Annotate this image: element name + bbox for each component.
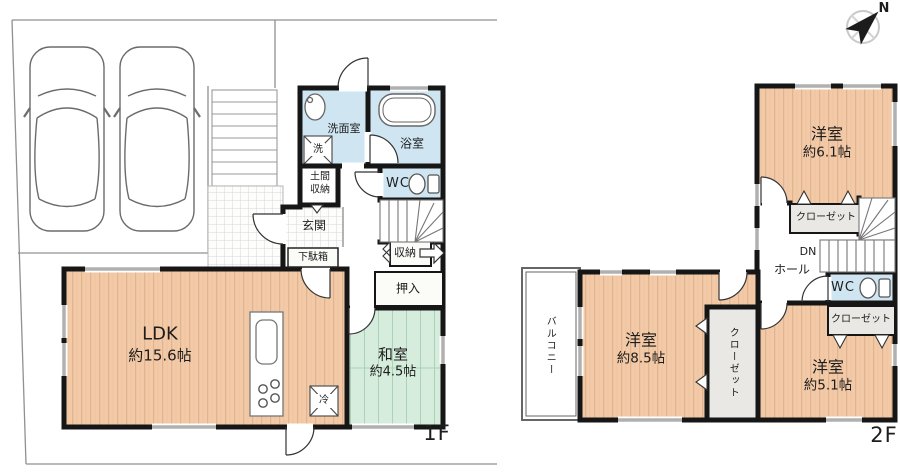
closet-85 <box>709 309 756 418</box>
stairs-1f-icon <box>380 200 443 242</box>
floorplan-canvas: N 洗面室 洗 浴室 WC 土間 収納 玄関 下駄箱 収納 押入 LDK 約15… <box>0 0 900 476</box>
washbasin-icon <box>305 94 325 120</box>
compass-icon <box>845 4 886 45</box>
washer-icon <box>304 136 332 164</box>
approach-steps <box>212 90 277 186</box>
fridge-icon <box>310 386 338 416</box>
kitchen-sink-icon <box>256 320 277 364</box>
box-closet-61 <box>790 204 862 233</box>
room-ldk <box>64 269 347 427</box>
kitchen-counter <box>250 312 283 416</box>
room-genkan <box>285 207 343 247</box>
balcony <box>522 268 580 420</box>
bathtub-icon <box>379 94 435 126</box>
box-oshiire <box>375 272 443 306</box>
box-closet-51 <box>828 306 895 335</box>
parking-area <box>24 47 200 231</box>
box-getabako <box>288 248 338 267</box>
floorplan-drawing <box>0 0 900 476</box>
